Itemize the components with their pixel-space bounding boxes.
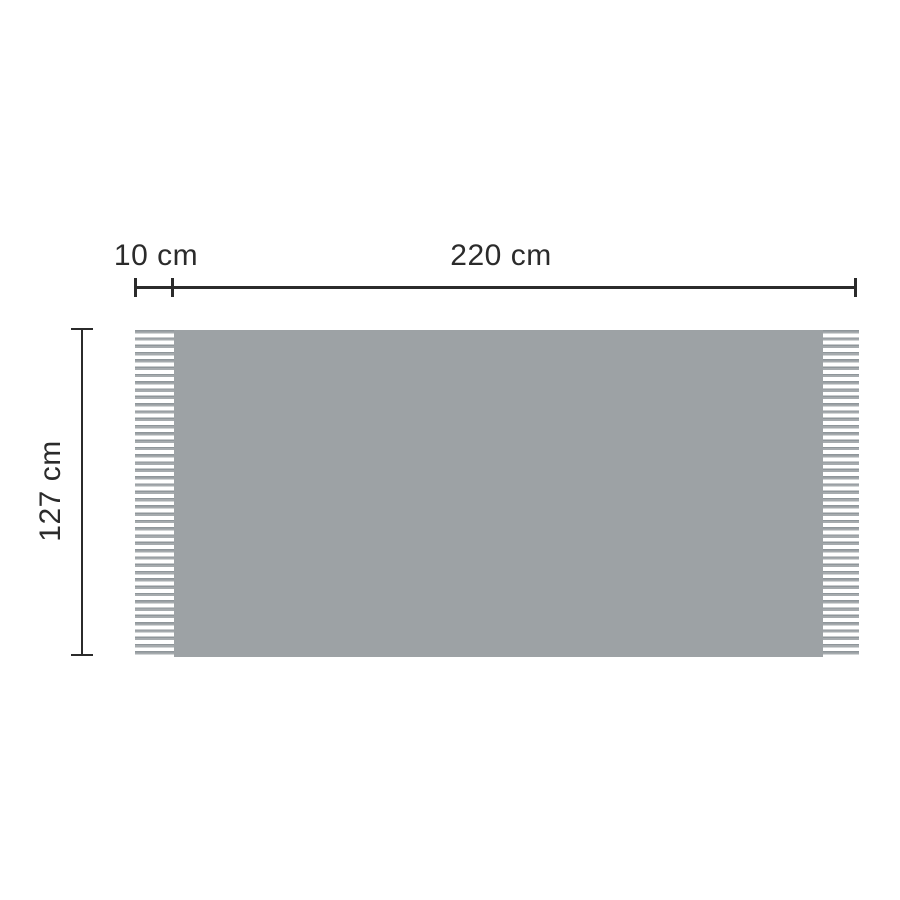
width-dim-tick-right — [854, 278, 857, 297]
total-width-label: 220 cm — [450, 241, 551, 271]
width-dim-tick-fringe — [171, 278, 174, 297]
width-dim-tick-left — [134, 278, 137, 297]
height-label: 127 cm — [36, 440, 66, 541]
height-dim-cap-bottom — [71, 654, 93, 656]
width-dimension-line — [134, 286, 857, 289]
blanket-illustration — [135, 330, 859, 657]
blanket-fringe-left — [135, 330, 174, 657]
fringe-width-label: 10 cm — [114, 241, 198, 271]
blanket-body — [174, 330, 823, 657]
height-dim-cap-top — [71, 328, 93, 330]
dimension-diagram: 10 cm 220 cm 127 cm — [0, 0, 900, 900]
height-dimension-line — [81, 328, 83, 656]
blanket-fringe-right — [823, 330, 859, 657]
